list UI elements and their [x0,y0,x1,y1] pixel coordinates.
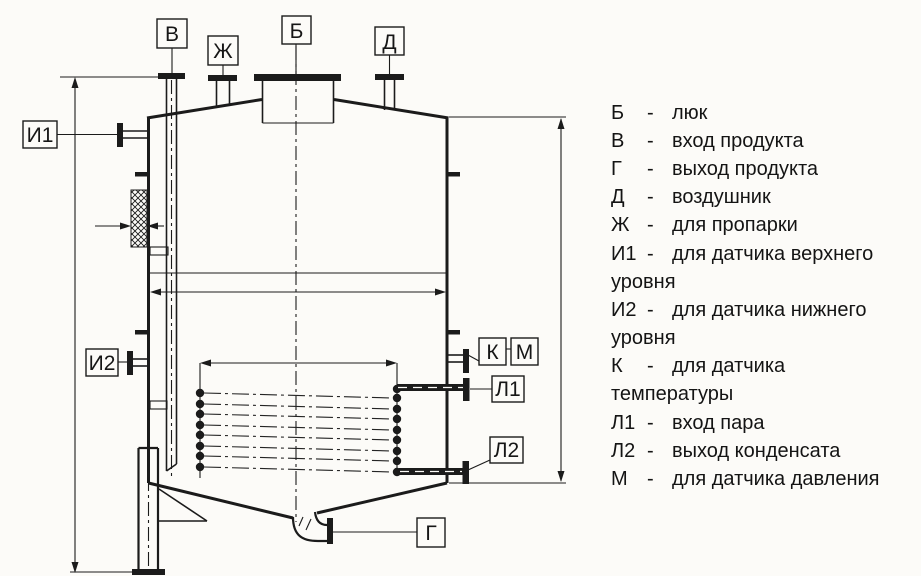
legend-text: вход продукта [672,130,804,153]
lower-level-sensor-nozzle [127,351,149,375]
legend-dash: - [647,102,672,125]
legend-text: выход продукта [672,158,818,181]
technical-drawing-page: В Ж Б Д И1 И2 К [0,0,921,576]
vessel-shell [147,46,449,522]
legend-dash: - [647,243,672,266]
steam-inlet-pipe [397,378,470,401]
nozzle-label-g-text: Г [425,522,436,545]
legend-dash: - [647,468,672,491]
legend-letter: И2 [611,299,647,322]
nozzle-label-v: В [157,19,187,73]
legend-row: Г - выход продукта [611,155,913,183]
nozzle-label-d-text: Д [382,31,396,54]
legend-text: для датчика нижнего [672,299,866,322]
legend-text: температуры [611,383,733,406]
temperature-sensor-nozzle [447,349,469,373]
wall-thickness-detail [95,190,164,247]
nozzle-label-m-text: М [516,341,534,364]
bottom-outlet-elbow [293,512,333,544]
legend-row: Л2 - выход конденсата [611,437,913,465]
legend-letter: Г [611,158,647,181]
legend: Б - люк В - вход продукта Г - выход прод… [611,99,913,494]
legend-row: температуры [611,381,913,409]
legend-text: уровня [611,271,676,294]
nozzle-labels: В Ж Б Д И1 И2 К [23,16,538,547]
heating-coil [196,360,401,479]
vent-nozzle [375,74,404,110]
legend-row: уровня [611,325,913,353]
legend-letter: Л2 [611,440,647,463]
manhole-nozzle [254,74,341,123]
legend-dash: - [647,412,672,435]
legend-letter: Д [611,186,647,209]
legend-letter: М [611,468,647,491]
legend-row: И2 - для датчика нижнего [611,296,913,324]
legend-row: Ж - для пропарки [611,212,913,240]
legend-text: уровня [611,327,676,350]
legend-text: люк [672,102,707,125]
legend-dash: - [647,355,672,378]
nozzle-label-m: М [506,338,538,365]
legend-row: М - для датчика давления [611,465,913,493]
overall-height-dimension [60,77,158,573]
legend-dash: - [647,130,672,153]
legend-row: Л1 - вход пара [611,409,913,437]
legend-dash: - [647,186,672,209]
legend-letter: Ж [611,214,647,237]
legend-row: уровня [611,268,913,296]
inner-diameter-dimension [150,289,446,296]
legend-text: для пропарки [672,214,798,237]
legend-letter: К [611,355,647,378]
nozzle-label-zh-text: Ж [213,40,233,63]
nozzle-label-b: Б [282,16,311,74]
support-leg [132,448,207,575]
legend-letter: Л1 [611,412,647,435]
legend-row: Б - люк [611,99,913,127]
legend-text: для датчика [672,355,785,378]
legend-text: выход конденсата [672,440,840,463]
nozzle-label-i2-text: И2 [89,352,116,375]
legend-dash: - [647,299,672,322]
nozzle-label-i1-text: И1 [27,124,54,147]
pipe-clamps [150,247,168,409]
legend-text: вход пара [672,412,765,435]
legend-rows: Б - люк В - вход продукта Г - выход прод… [611,99,913,494]
legend-row: И1 - для датчика верхнего [611,240,913,268]
legend-text: воздушник [672,186,771,209]
legend-letter: В [611,130,647,153]
legend-text: для датчика верхнего [672,243,873,266]
coil-connection-dots [196,385,401,476]
nozzle-label-l2-text: Л2 [494,439,519,462]
product-inlet-dip-pipe [158,73,185,477]
nozzle-label-l1-text: Л1 [495,378,520,401]
nozzle-label-b-text: Б [290,20,304,43]
nozzle-label-i1: И1 [23,121,117,148]
nozzle-label-g: Г [333,518,445,547]
legend-dash: - [647,440,672,463]
legend-text: для датчика давления [672,468,880,491]
nozzle-label-l2: Л2 [468,437,523,470]
wall-lugs [135,172,460,335]
legend-row: Д - воздушник [611,184,913,212]
shell-height-dimension [449,117,566,483]
nozzle-label-k-text: К [486,341,499,364]
legend-row: В - вход продукта [611,127,913,155]
upper-level-sensor-nozzle [117,123,149,147]
nozzle-label-k: К [468,338,506,365]
legend-dash: - [647,158,672,181]
nozzle-label-l1: Л1 [470,376,524,402]
condensate-outlet-pipe [399,461,469,484]
legend-letter: И1 [611,243,647,266]
nozzle-label-i2: И2 [86,349,127,376]
nozzle-label-zh: Ж [208,36,238,75]
legend-dash: - [647,214,672,237]
nozzle-label-d: Д [375,27,404,74]
legend-letter: Б [611,102,647,125]
nozzle-label-v-text: В [165,23,179,46]
legend-row: К - для датчика [611,353,913,381]
